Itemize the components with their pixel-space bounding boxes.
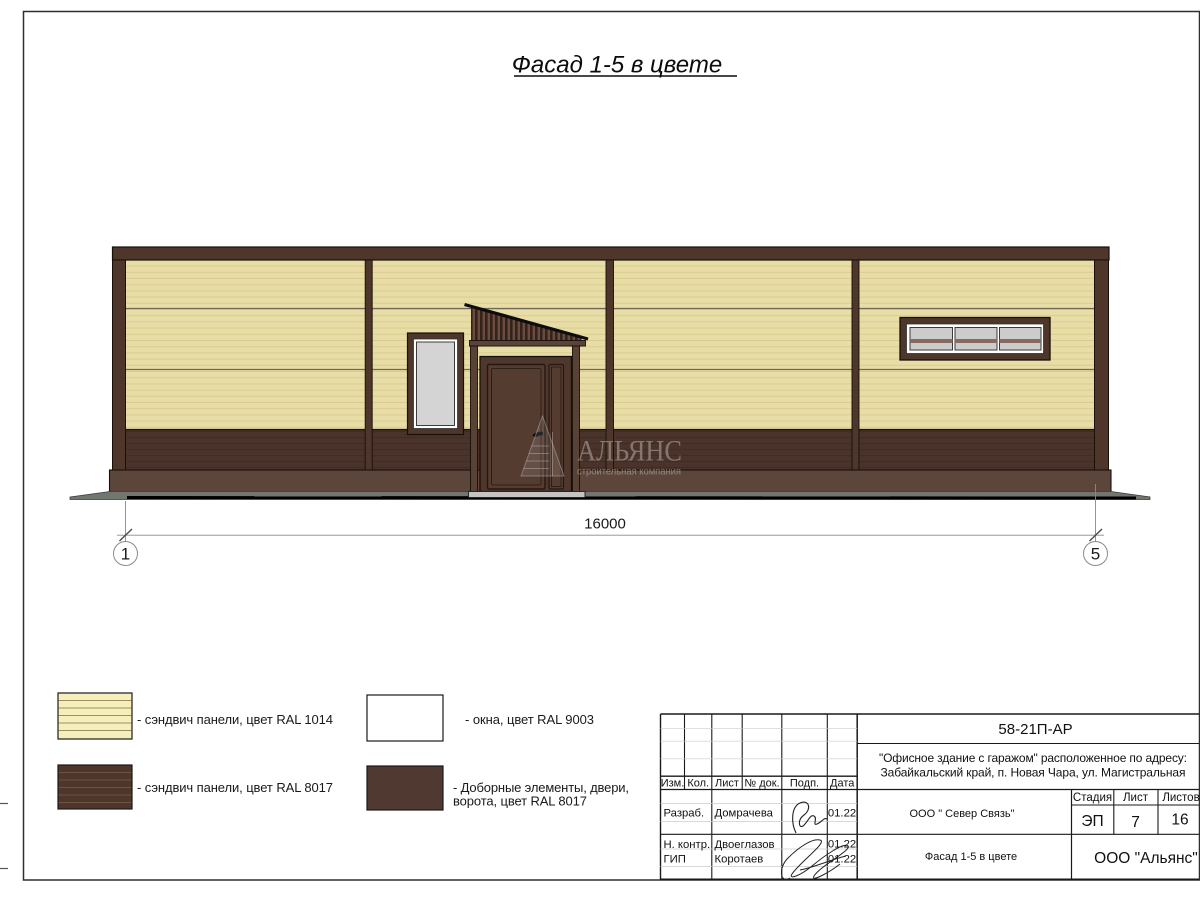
- svg-text:Дата: Дата: [830, 778, 855, 790]
- svg-text:Н. контр.: Н. контр.: [664, 839, 711, 851]
- svg-text:Коротаев: Коротаев: [715, 854, 764, 866]
- svg-text:5: 5: [1091, 545, 1100, 564]
- svg-text:Стадия: Стадия: [1073, 792, 1112, 804]
- svg-text:1: 1: [121, 545, 130, 564]
- svg-text:Подп.: Подп.: [790, 778, 819, 790]
- svg-text:Лист: Лист: [1123, 792, 1149, 804]
- svg-text:58-21П-АР: 58-21П-АР: [998, 721, 1072, 738]
- svg-text:Лист: Лист: [715, 778, 739, 790]
- svg-text:ворота, цвет RAL 8017: ворота, цвет RAL 8017: [453, 794, 587, 809]
- svg-text:АЛЬЯНС: АЛЬЯНС: [577, 435, 682, 468]
- svg-text:01.22: 01.22: [828, 808, 856, 820]
- svg-text:Фасад 1-5 в цвете: Фасад 1-5 в цвете: [512, 52, 722, 79]
- svg-text:Листов: Листов: [1162, 792, 1199, 804]
- svg-text:Забайкальский край, п. Новая Ч: Забайкальский край, п. Новая Чара, ул. М…: [881, 766, 1186, 780]
- svg-text:ЭП: ЭП: [1081, 813, 1103, 830]
- svg-text:Фасад 1-5 в цвете: Фасад 1-5 в цвете: [925, 851, 1017, 863]
- svg-text:16: 16: [1171, 812, 1188, 829]
- svg-text:Домрачева: Домрачева: [715, 808, 774, 820]
- svg-text:"Офисное здание с гаражом" рас: "Офисное здание с гаражом" расположенное…: [879, 751, 1187, 765]
- svg-text:16000: 16000: [584, 516, 626, 533]
- svg-text:01.22: 01.22: [828, 854, 856, 866]
- svg-text:№ док.: № док.: [744, 778, 779, 790]
- svg-text:Изм.: Изм.: [661, 778, 685, 790]
- svg-text:- сэндвич панели, цвет RAL 101: - сэндвич панели, цвет RAL 1014: [137, 712, 333, 727]
- svg-text:ООО "Альянс": ООО "Альянс": [1094, 850, 1198, 867]
- svg-text:- окна, цвет RAL 9003: - окна, цвет RAL 9003: [465, 712, 594, 727]
- svg-text:Кол.: Кол.: [687, 778, 709, 790]
- svg-text:ГИП: ГИП: [664, 854, 686, 866]
- svg-text:строительная компания: строительная компания: [577, 467, 681, 478]
- svg-text:- сэндвич панели, цвет RAL 801: - сэндвич панели, цвет RAL 8017: [137, 780, 333, 795]
- svg-text:ООО " Север Связь": ООО " Север Связь": [909, 808, 1014, 820]
- svg-text:Двоеглазов: Двоеглазов: [715, 839, 775, 851]
- svg-text:Разраб.: Разраб.: [664, 808, 705, 820]
- svg-text:7: 7: [1131, 814, 1140, 831]
- svg-text:01.22: 01.22: [828, 839, 856, 851]
